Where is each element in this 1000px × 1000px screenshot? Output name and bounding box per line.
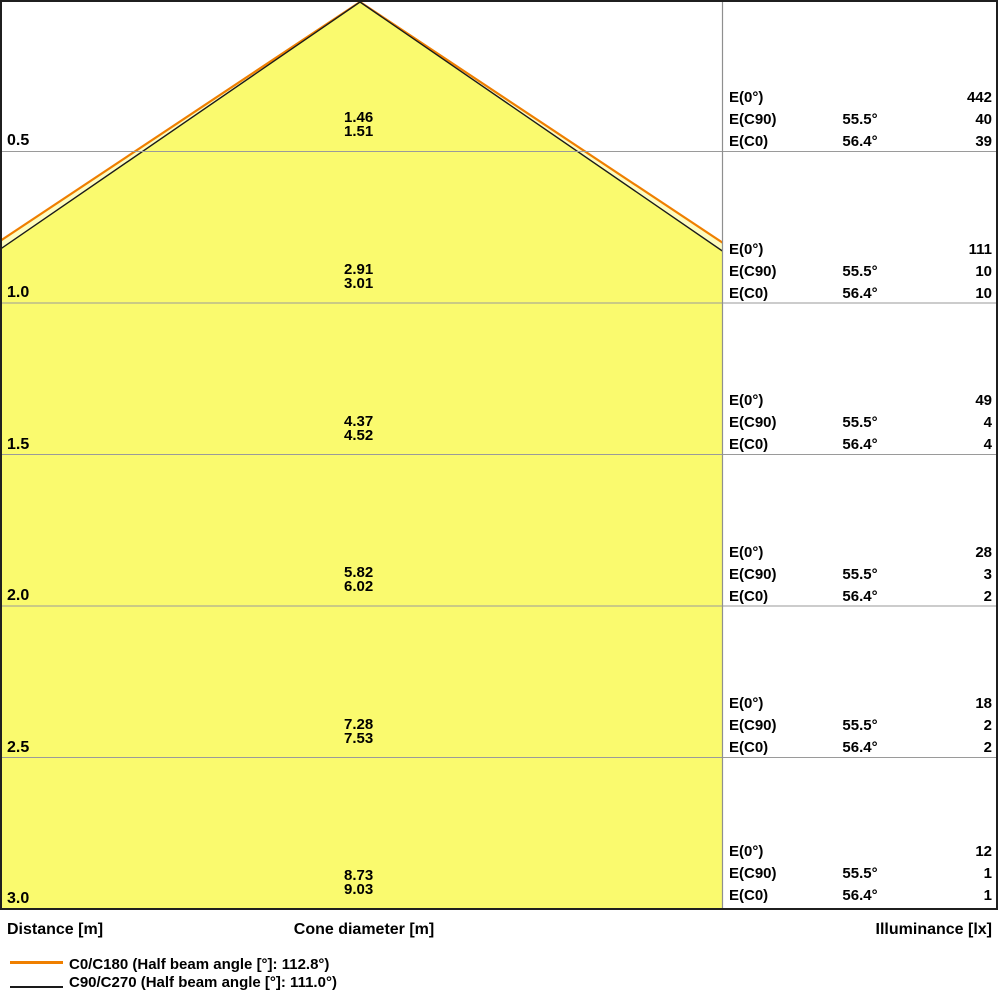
- ec0-angle: 56.4°: [817, 131, 903, 153]
- ec0-angle: 56.4°: [817, 737, 903, 759]
- distance-label: 2.0: [7, 586, 29, 606]
- axis-label-cone-diameter: Cone diameter [m]: [264, 920, 464, 940]
- ec0-label: E(C0): [729, 283, 768, 305]
- ec90-value: 40: [975, 109, 992, 131]
- axis-label-illuminance: Illuminance [lx]: [876, 920, 992, 940]
- ec0-angle: 56.4°: [817, 586, 903, 608]
- cone-diameter-values: 4.37 4.52: [344, 415, 373, 443]
- ec0-value: 39: [975, 131, 992, 153]
- ec0-value: 2: [984, 586, 992, 608]
- cone-diameter-c0: 9.03: [344, 883, 373, 897]
- ec90-label: E(C90): [729, 261, 777, 283]
- ec90-angle: 55.5°: [817, 863, 903, 885]
- ec90-label: E(C90): [729, 715, 777, 737]
- ec90-angle: 55.5°: [817, 412, 903, 434]
- ec90-label: E(C90): [729, 109, 777, 131]
- ec0-angle: 56.4°: [817, 885, 903, 907]
- ec0-label: E(C0): [729, 885, 768, 907]
- ec90-label: E(C90): [729, 412, 777, 434]
- cone-diameter-c0: 4.52: [344, 429, 373, 443]
- ec90-angle: 55.5°: [817, 109, 903, 131]
- e0-value: 442: [967, 87, 992, 109]
- e0-value: 18: [975, 693, 992, 715]
- ec0-value: 4: [984, 434, 992, 456]
- light-cone-diagram: 0.5 1.46 1.51 E(0°)442 E(C90)55.5°40 E(C…: [0, 0, 1000, 1000]
- e0-label: E(0°): [729, 87, 763, 109]
- e0-label: E(0°): [729, 239, 763, 261]
- cone-diameter-c0: 6.02: [344, 580, 373, 594]
- illuminance-block: E(0°)28 E(C90)55.5°3 E(C0)56.4°2: [729, 542, 992, 608]
- e0-value: 12: [975, 841, 992, 863]
- legend-entry-c90-c270: C90/C270 (Half beam angle [°]: 111.0°): [0, 973, 600, 993]
- cone-diameter-c0: 1.51: [344, 125, 373, 139]
- e0-label: E(0°): [729, 693, 763, 715]
- cone-diameter-c0: 3.01: [344, 277, 373, 291]
- illuminance-block: E(0°)12 E(C90)55.5°1 E(C0)56.4°1: [729, 841, 992, 907]
- illuminance-block: E(0°)49 E(C90)55.5°4 E(C0)56.4°4: [729, 390, 992, 456]
- legend-entry-c0-c180: C0/C180 (Half beam angle [°]: 112.8°): [0, 955, 600, 975]
- illuminance-block: E(0°)442 E(C90)55.5°40 E(C0)56.4°39: [729, 87, 992, 153]
- legend-label-c90-c270: C90/C270 (Half beam angle [°]: 111.0°): [69, 973, 337, 993]
- e0-label: E(0°): [729, 390, 763, 412]
- e0-label: E(0°): [729, 841, 763, 863]
- distance-label: 3.0: [7, 889, 29, 909]
- ec0-angle: 56.4°: [817, 434, 903, 456]
- distance-label: 1.0: [7, 283, 29, 303]
- cone-diameter-c0: 7.53: [344, 732, 373, 746]
- ec90-value: 2: [984, 715, 992, 737]
- ec90-label: E(C90): [729, 863, 777, 885]
- ec0-label: E(C0): [729, 586, 768, 608]
- ec0-value: 2: [984, 737, 992, 759]
- ec90-value: 4: [984, 412, 992, 434]
- ec90-angle: 55.5°: [817, 715, 903, 737]
- legend-label-c0-c180: C0/C180 (Half beam angle [°]: 112.8°): [69, 955, 329, 975]
- axis-label-distance: Distance [m]: [7, 920, 103, 940]
- ec0-label: E(C0): [729, 434, 768, 456]
- cone-diameter-values: 2.91 3.01: [344, 263, 373, 291]
- ec0-label: E(C0): [729, 737, 768, 759]
- ec90-value: 1: [984, 863, 992, 885]
- ec90-value: 3: [984, 564, 992, 586]
- ec90-value: 10: [975, 261, 992, 283]
- ec90-angle: 55.5°: [817, 261, 903, 283]
- distance-label: 1.5: [7, 435, 29, 455]
- cone-diameter-values: 7.28 7.53: [344, 718, 373, 746]
- ec0-angle: 56.4°: [817, 283, 903, 305]
- e0-value: 28: [975, 542, 992, 564]
- cone-diameter-values: 5.82 6.02: [344, 566, 373, 594]
- illuminance-block: E(0°)18 E(C90)55.5°2 E(C0)56.4°2: [729, 693, 992, 759]
- e0-label: E(0°): [729, 542, 763, 564]
- ec0-value: 1: [984, 885, 992, 907]
- illuminance-block: E(0°)111 E(C90)55.5°10 E(C0)56.4°10: [729, 239, 992, 305]
- cone-diameter-values: 1.46 1.51: [344, 111, 373, 139]
- distance-label: 2.5: [7, 738, 29, 758]
- ec90-angle: 55.5°: [817, 564, 903, 586]
- ec90-label: E(C90): [729, 564, 777, 586]
- e0-value: 49: [975, 390, 992, 412]
- cone-diameter-values: 8.73 9.03: [344, 869, 373, 897]
- ec0-value: 10: [975, 283, 992, 305]
- distance-label: 0.5: [7, 131, 29, 151]
- ec0-label: E(C0): [729, 131, 768, 153]
- e0-value: 111: [969, 239, 992, 261]
